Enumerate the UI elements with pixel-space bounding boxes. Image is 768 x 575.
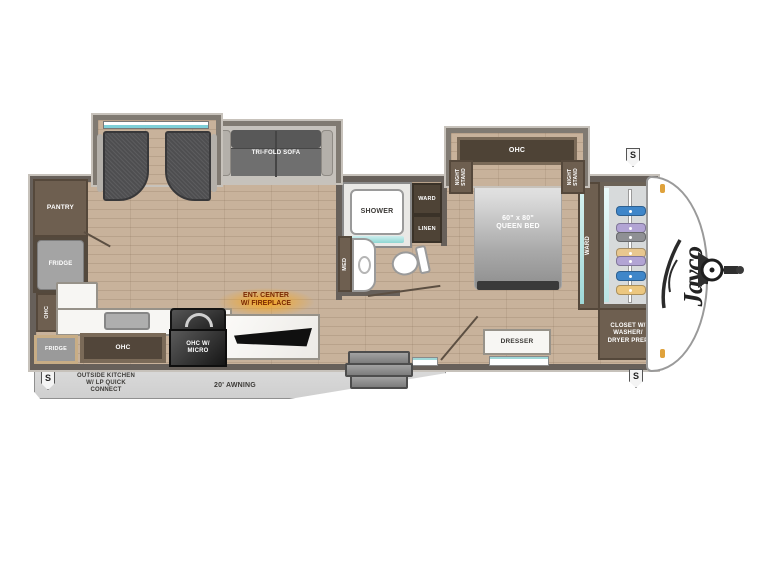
bedroom-ward: WARD — [578, 182, 600, 310]
ohc-micro-label: OHC W/ MICRO — [186, 341, 210, 355]
speaker-badge-top-right: S — [626, 148, 640, 167]
ent-center-cabinet — [224, 314, 320, 360]
closet-mirror — [604, 188, 609, 302]
pantry: PANTRY — [33, 179, 88, 237]
bedroom-ohc: OHC — [457, 137, 577, 165]
bedroom-ward-label: WARD — [585, 236, 592, 255]
closet-hanger — [616, 206, 646, 216]
nightstand-left: NIGHTSTAND — [449, 160, 473, 194]
bedroom-ohc-label: OHC — [509, 147, 525, 155]
seats-slide — [93, 115, 221, 185]
dresser: DRESSER — [483, 329, 551, 355]
outside-kitchen-label: OUTSIDE KITCHEN W/ LP QUICK CONNECT — [58, 373, 154, 395]
ward-glass — [580, 188, 584, 304]
nightstand-label: NIGHTSTAND — [455, 168, 467, 186]
floorplan: OUTSIDE KITCHEN W/ LP QUICK CONNECT 20' … — [0, 0, 768, 575]
bath-ward: WARD — [412, 183, 442, 215]
kitchen-ohc: OHC — [80, 333, 166, 363]
seat-armrest — [211, 134, 217, 192]
pantry-label: PANTRY — [47, 204, 74, 212]
step — [350, 375, 408, 389]
marker-light — [660, 184, 665, 193]
hitch — [696, 246, 746, 294]
sofa-label-wrap: TRI-FOLD SOFA — [231, 144, 321, 164]
bath-sink — [352, 238, 376, 292]
awning-label: 20' AWNING — [190, 382, 280, 390]
ohc-left-label: OHC — [44, 306, 51, 319]
ohc-left: OHC — [36, 293, 58, 332]
bedroom-slide: OHC NIGHTSTAND NIGHTSTAND — [446, 128, 588, 186]
sofa-slide: TRI-FOLD SOFA — [211, 121, 341, 183]
outside-fridge-label: FRIDGE — [45, 346, 67, 353]
slide-window — [103, 121, 209, 129]
faucet-arc — [185, 313, 213, 327]
shower-pan: SHOWER — [350, 189, 404, 235]
med-label: MED — [342, 258, 349, 271]
med-cabinet: MED — [338, 236, 352, 292]
ent-center-label: ENT. CENTER W/ FIREPLACE — [218, 292, 314, 309]
sofa-label: TRI-FOLD SOFA — [252, 150, 301, 157]
window-entry — [412, 357, 438, 366]
closet-hanger — [616, 232, 646, 242]
shower-label: SHOWER — [361, 208, 394, 216]
sofa-armrest — [321, 130, 333, 176]
fridge-label: FRIDGE — [49, 261, 73, 268]
bed-label: 60" x 80" QUEEN BED — [475, 215, 561, 232]
fireplace — [234, 328, 312, 348]
linen: LINEN — [412, 215, 442, 243]
closet-hanger — [616, 256, 646, 266]
entry-steps — [344, 349, 414, 391]
dresser-label: DRESSER — [501, 338, 534, 346]
bath-ward-label: WARD — [418, 196, 436, 203]
closet-hanger — [616, 271, 646, 281]
linen-label: LINEN — [418, 226, 436, 233]
marker-light — [660, 349, 665, 358]
window-bedroom — [489, 356, 549, 366]
bed-foot — [477, 281, 559, 290]
nightstand-right: NIGHTSTAND — [561, 160, 585, 194]
closet-hanger — [616, 285, 646, 295]
outside-fridge: FRIDGE — [34, 335, 78, 364]
ohc-with-micro: OHC W/ MICRO — [169, 329, 227, 367]
bath-sink-basin — [358, 256, 371, 274]
nightstand-label: NIGHTSTAND — [567, 168, 579, 186]
closet-label: CLOSET W/ WASHER/ DRYER PREP — [608, 323, 649, 345]
kitchen-ohc-label: OHC — [115, 344, 130, 352]
theater-seat-right — [165, 131, 211, 201]
kitchen-sink — [104, 312, 150, 330]
toilet-tank — [415, 245, 432, 275]
speaker-badge-bottom-right: S — [629, 369, 643, 388]
